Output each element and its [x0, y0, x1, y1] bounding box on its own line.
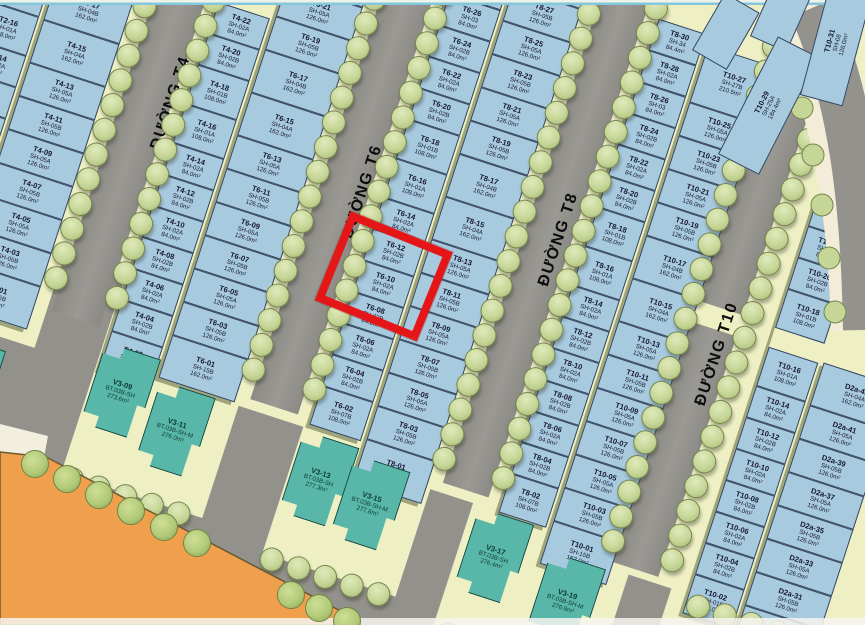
- bottom-edge-strip: [0, 618, 865, 625]
- bush-symbol: [277, 581, 305, 609]
- map-overlay: [0, 0, 865, 625]
- bush-symbol: [150, 513, 178, 541]
- master-plan-map: ĐƯỜNG T4ĐƯỜNG T6ĐƯỜNG T8ĐƯỜNG T10T2-18SH…: [0, 0, 865, 625]
- bush-symbol: [117, 497, 145, 525]
- bush-symbol: [305, 594, 333, 622]
- bush-symbol: [183, 529, 211, 557]
- bush-symbol: [53, 465, 81, 493]
- bush-symbol: [21, 450, 49, 478]
- bush-symbol: [85, 481, 113, 509]
